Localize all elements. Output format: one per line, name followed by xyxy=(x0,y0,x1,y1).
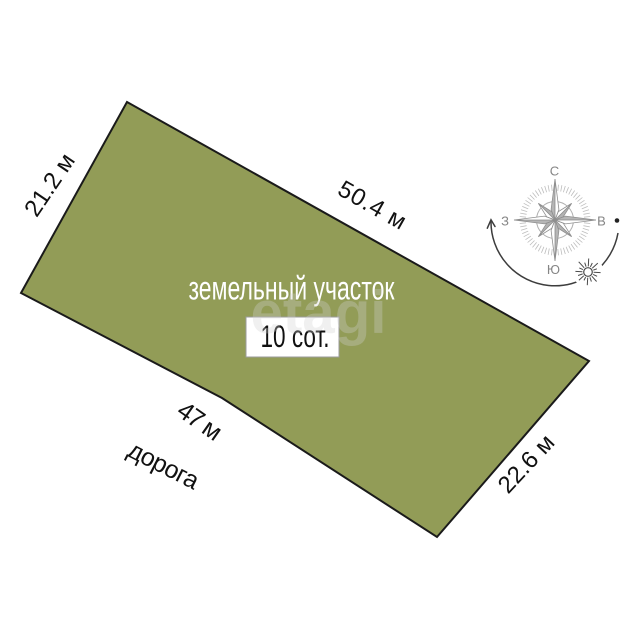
svg-text:Ю: Ю xyxy=(547,262,560,277)
svg-text:etagi: etagi xyxy=(251,279,387,346)
svg-text:В: В xyxy=(597,214,606,229)
svg-text:С: С xyxy=(550,164,559,179)
svg-text:З: З xyxy=(501,214,509,229)
